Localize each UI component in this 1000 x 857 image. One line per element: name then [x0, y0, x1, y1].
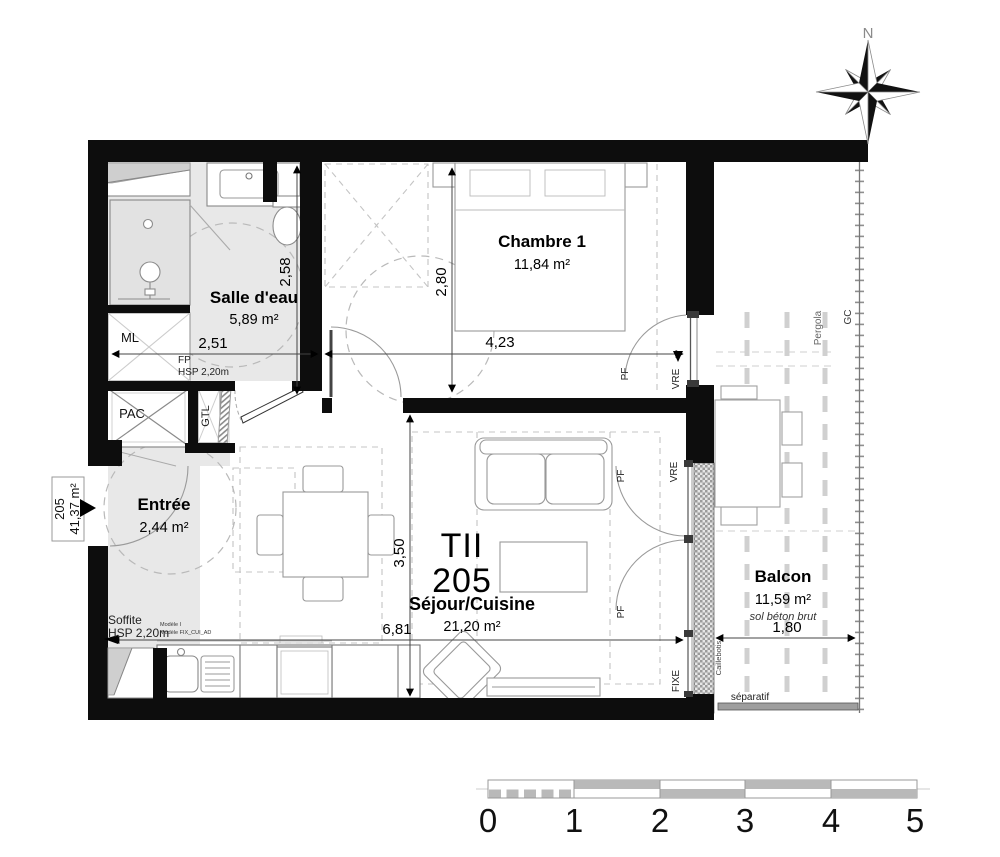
label-caillebotis: Caillebotis	[714, 640, 723, 675]
label-module-2: Modèle FIX_CUI_AD	[160, 630, 211, 636]
label-heat-pump: PAC	[119, 406, 145, 421]
room-area-bedroom: 11,84 m²	[514, 257, 570, 273]
dim-balcony-width: 1,80	[772, 619, 801, 636]
label-pf-living-bottom: PF	[616, 606, 627, 619]
bathroom-door	[235, 387, 303, 423]
dim-bathroom-height: 2,58	[277, 257, 294, 286]
label-fixe: FIXE	[671, 670, 682, 693]
tv-bench	[487, 678, 600, 696]
room-area-balcony: 11,59 m²	[755, 592, 811, 608]
compass-north-label: N	[863, 25, 874, 42]
dim-bedroom-height: 2,80	[433, 267, 450, 296]
label-pergola: Pergola	[813, 310, 824, 345]
unit-number-side: 205	[52, 498, 67, 520]
room-name-bedroom: Chambre 1	[498, 232, 586, 251]
fridge	[277, 647, 332, 698]
dim-bedroom-width: 4,23	[485, 334, 514, 351]
bedroom-door	[331, 327, 401, 397]
scale-bar: 0 1 2 3 4 5	[476, 780, 930, 839]
dim-living-height: 3,50	[391, 538, 408, 567]
room-area-entry: 2,44 m²	[139, 520, 188, 536]
separator-panel	[718, 703, 858, 710]
sofa	[475, 438, 612, 510]
label-fp: FP	[178, 355, 191, 366]
label-washing-machine: ML	[121, 330, 139, 345]
label-pf-living-top: PF	[616, 470, 627, 483]
balcony-table	[715, 400, 780, 507]
scale-tick-1: 1	[565, 802, 583, 839]
floor-plan-drawing: N 0 1 2 3 4 5 Salle d'eau 5,89 m²	[0, 0, 1000, 857]
balcony-railing	[855, 162, 864, 713]
dining-table	[257, 466, 394, 601]
room-name-bathroom: Salle d'eau	[210, 288, 298, 307]
label-separatif: séparatif	[731, 692, 770, 703]
kitchen-counter	[157, 636, 420, 698]
room-area-living: 21,20 m²	[443, 619, 500, 635]
floor-plan-page: N 0 1 2 3 4 5 Salle d'eau 5,89 m²	[0, 0, 1000, 857]
room-name-living: Séjour/Cuisine	[409, 594, 535, 614]
label-vre-living: VRE	[669, 461, 680, 482]
scale-tick-4: 4	[822, 802, 840, 839]
caillebotis-strip	[694, 463, 714, 713]
dim-bathroom-width: 2,51	[198, 335, 227, 352]
coffee-table	[500, 542, 587, 592]
bathroom-window	[105, 163, 190, 196]
living-doors-glazing	[686, 463, 694, 694]
unit-type: TII	[441, 527, 484, 565]
label-soffite: Soffite	[108, 613, 142, 627]
living-door-swing-bottom	[616, 540, 686, 610]
entry-corner-window	[108, 648, 167, 703]
bedroom-furniture	[325, 163, 647, 331]
unit-area-side: 41,37 m²	[67, 483, 82, 535]
room-area-bathroom: 5,89 m²	[229, 312, 278, 328]
entry-arrow	[80, 499, 96, 517]
bedroom-window-swing	[625, 315, 687, 378]
compass-rose	[816, 40, 920, 144]
label-module-1: Modèle I	[160, 622, 182, 628]
scale-tick-0: 0	[479, 802, 497, 839]
room-name-entry: Entrée	[138, 495, 191, 514]
label-pf-bedroom: PF	[620, 368, 631, 381]
scale-tick-2: 2	[651, 802, 669, 839]
label-fp-height: HSP 2,20m	[178, 367, 229, 378]
wardrobe	[325, 164, 428, 287]
bedroom-window	[686, 315, 714, 385]
label-gtl: GTL	[200, 405, 212, 426]
scale-tick-3: 3	[736, 802, 754, 839]
dim-living-width: 6,81	[382, 621, 411, 638]
label-vre-bedroom: VRE	[671, 368, 682, 389]
scale-tick-5: 5	[906, 802, 924, 839]
room-name-balcony: Balcon	[755, 567, 812, 586]
label-gc: GC	[843, 310, 854, 325]
